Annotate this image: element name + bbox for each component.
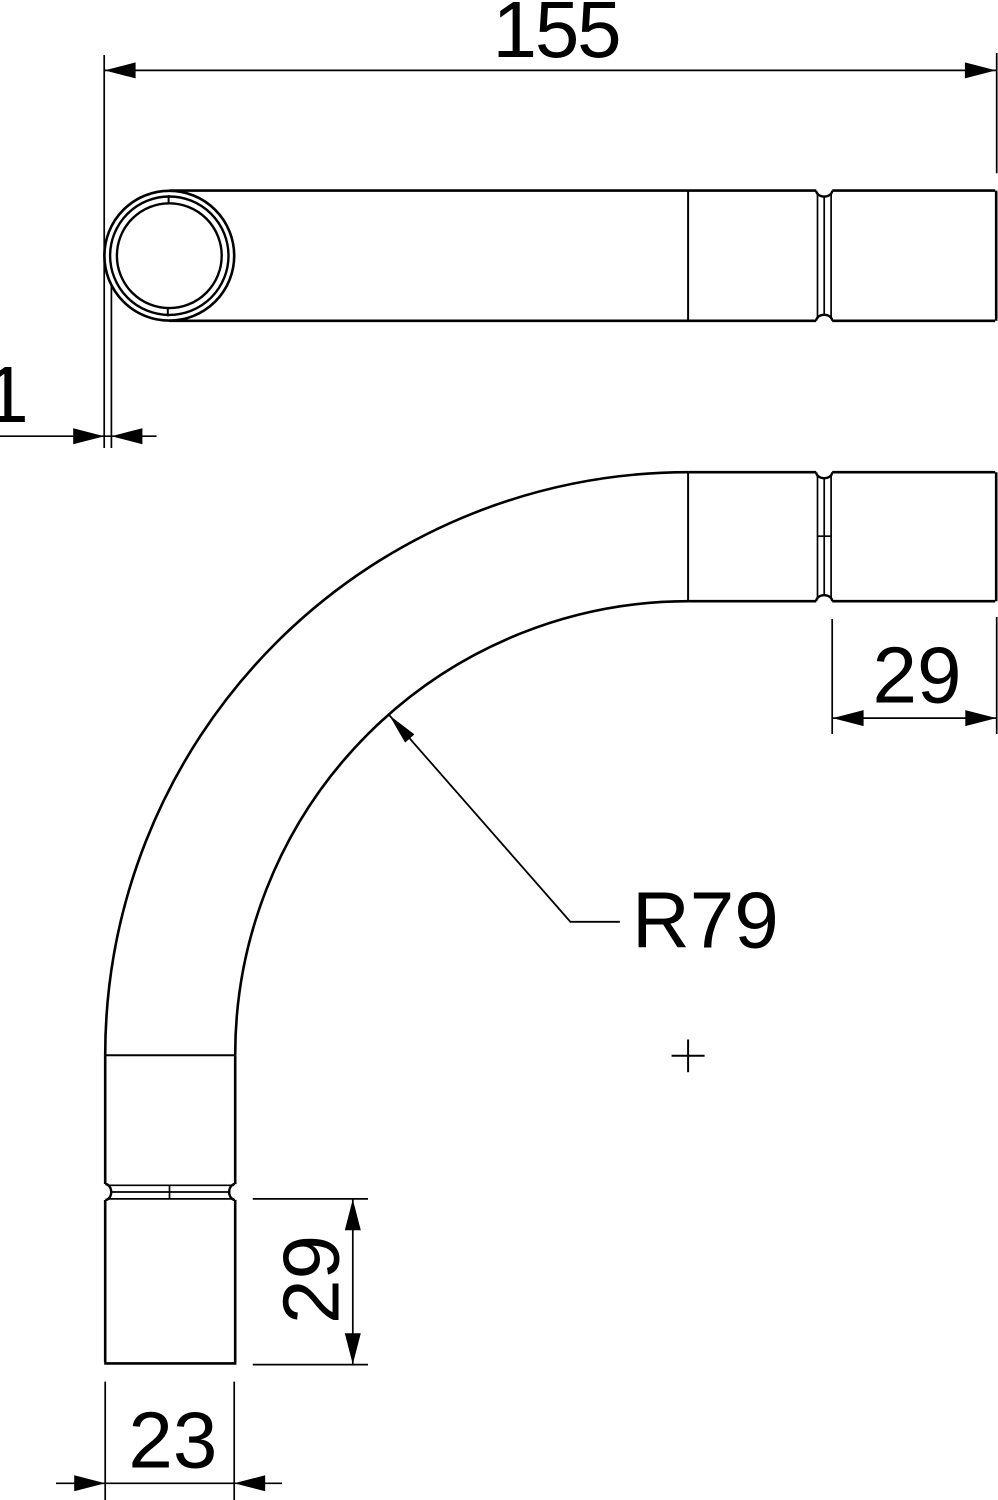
- svg-text:29: 29: [873, 631, 962, 720]
- svg-text:155: 155: [493, 0, 620, 74]
- svg-text:R79: R79: [632, 876, 779, 965]
- svg-text:29: 29: [267, 1235, 356, 1324]
- svg-text:23: 23: [128, 1395, 217, 1484]
- svg-text:1: 1: [0, 350, 29, 439]
